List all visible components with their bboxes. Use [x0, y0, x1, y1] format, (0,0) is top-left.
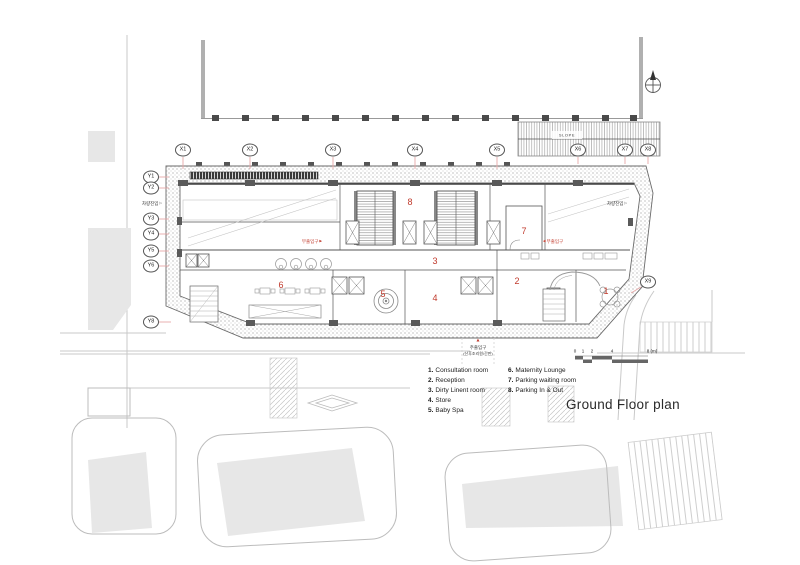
grid-bubble-x3: X3 [325, 144, 341, 157]
legend-num: 8. [508, 386, 513, 396]
canopy-bar [190, 172, 318, 179]
slope-strip [518, 122, 660, 156]
parking-ramp-right [434, 191, 478, 245]
legend-item: 8.Parking In & Out [508, 386, 576, 396]
sub-entrance-label-left: 부출입구 ▶ [302, 239, 322, 245]
scale-bar [575, 356, 648, 363]
legend-item: 6.Maternity Lounge [508, 366, 576, 376]
scale-tick-4: 4 [611, 349, 614, 354]
grid-bubble-y5: Y5 [143, 245, 159, 258]
legend-num: 3. [428, 386, 433, 396]
legend-label: Baby Spa [435, 406, 463, 416]
legend-num: 5. [428, 406, 433, 416]
legend-label: Consultation room [435, 366, 488, 376]
building-perimeter-band [166, 166, 653, 338]
sub-entrance-arrow-icon: ◀ [543, 240, 546, 244]
scale-tick-2: 2 [591, 349, 594, 354]
north-arrow-icon [646, 70, 661, 93]
legend-label: Reception [435, 376, 464, 386]
grid-bubble-y8: Y8 [143, 316, 159, 329]
legend-label: Maternity Lounge [515, 366, 565, 376]
room-number-4: 4 [432, 293, 437, 303]
room-number-3: 3 [432, 256, 437, 266]
grid-bubble-y4: Y4 [143, 228, 159, 241]
room-number-2: 2 [514, 276, 519, 286]
legend-num: 6. [508, 366, 513, 376]
room-number-8: 8 [407, 197, 412, 207]
grid-bubble-y2: Y2 [143, 182, 159, 195]
upper-lot [201, 37, 643, 121]
grid-bubble-y3: Y3 [143, 213, 159, 226]
page-title: Ground Floor plan [566, 397, 680, 412]
scale-tick-1: 1 [582, 349, 585, 354]
legend-label: Parking In & Out [515, 386, 563, 396]
lounge-tables [255, 288, 325, 294]
legend-num: 2. [428, 376, 433, 386]
legend-label: Dirty Linent room [435, 386, 485, 396]
grid-bubble-x4: X4 [407, 144, 423, 157]
lounge-chairs [276, 259, 332, 270]
legend-column-2: 6.Maternity Lounge 7.Parking waiting roo… [508, 366, 576, 396]
grid-bubble-y6: Y6 [143, 260, 159, 273]
legend-label: Store [435, 396, 451, 406]
stair-blocks [190, 286, 565, 322]
road-diamond-marker [308, 395, 357, 411]
scale-end-label: 8 (m) [647, 349, 658, 354]
scale-tick-0: 0 [574, 349, 577, 354]
vehicle-entry-arrow-icon: ▷ [624, 202, 627, 206]
main-entrance-marker-icon: ▲ [476, 339, 481, 344]
room-number-5: 5 [380, 289, 385, 299]
crossed-bench [249, 305, 321, 318]
legend-item: 5.Baby Spa [428, 406, 488, 416]
grid-bubble-x5: X5 [489, 144, 505, 157]
site-edge-columns [196, 162, 510, 166]
vehicle-entry-arrow-icon: ▷ [159, 202, 162, 206]
main-entrance-sublabel: (산후조리원/간판) [463, 351, 493, 357]
floor-plan-sheet: X1 X2 X3 X4 X5 X6 X7 X8 X9 Y1 Y2 Y3 Y4 Y… [0, 0, 800, 565]
plan-drawing [0, 0, 800, 565]
grid-bubble-x7: X7 [617, 144, 633, 157]
legend-num: 7. [508, 376, 513, 386]
legend-item: 3.Dirty Linent room [428, 386, 488, 396]
sub-entrance-arrow-icon: ▶ [319, 240, 322, 244]
baby-spa-pool [374, 289, 398, 313]
parking-ramp-left [354, 191, 396, 245]
legend-item: 2.Reception [428, 376, 488, 386]
legend-column-1: 1.Consultation room 2.Reception 3.Dirty … [428, 366, 488, 416]
room-number-7: 7 [521, 226, 526, 236]
legend-item: 1.Consultation room [428, 366, 488, 376]
legend-item: 4.Store [428, 396, 488, 406]
room-number-1: 1 [603, 286, 608, 296]
grid-bubble-x9: X9 [640, 276, 656, 289]
slope-label: SLOPE [559, 133, 575, 138]
legend-item: 7.Parking waiting room [508, 376, 576, 386]
grid-bubble-x8: X8 [640, 144, 656, 157]
grid-bubble-x1: X1 [175, 144, 191, 157]
vehicle-entry-label-right: 차량진입 ▷ [607, 201, 627, 207]
legend-num: 4. [428, 396, 433, 406]
vehicle-entry-label-left: 차량진입 ▷ [142, 201, 162, 207]
sub-entrance-label-right: ◀ 부출입구 [543, 239, 563, 245]
wall-cabinets [521, 253, 617, 259]
reception-desk [550, 272, 600, 290]
grid-bubble-x6: X6 [570, 144, 586, 157]
legend-num: 1. [428, 366, 433, 376]
grid-bubble-x2: X2 [242, 144, 258, 157]
room-number-6: 6 [278, 280, 283, 290]
legend-label: Parking waiting room [515, 376, 576, 386]
